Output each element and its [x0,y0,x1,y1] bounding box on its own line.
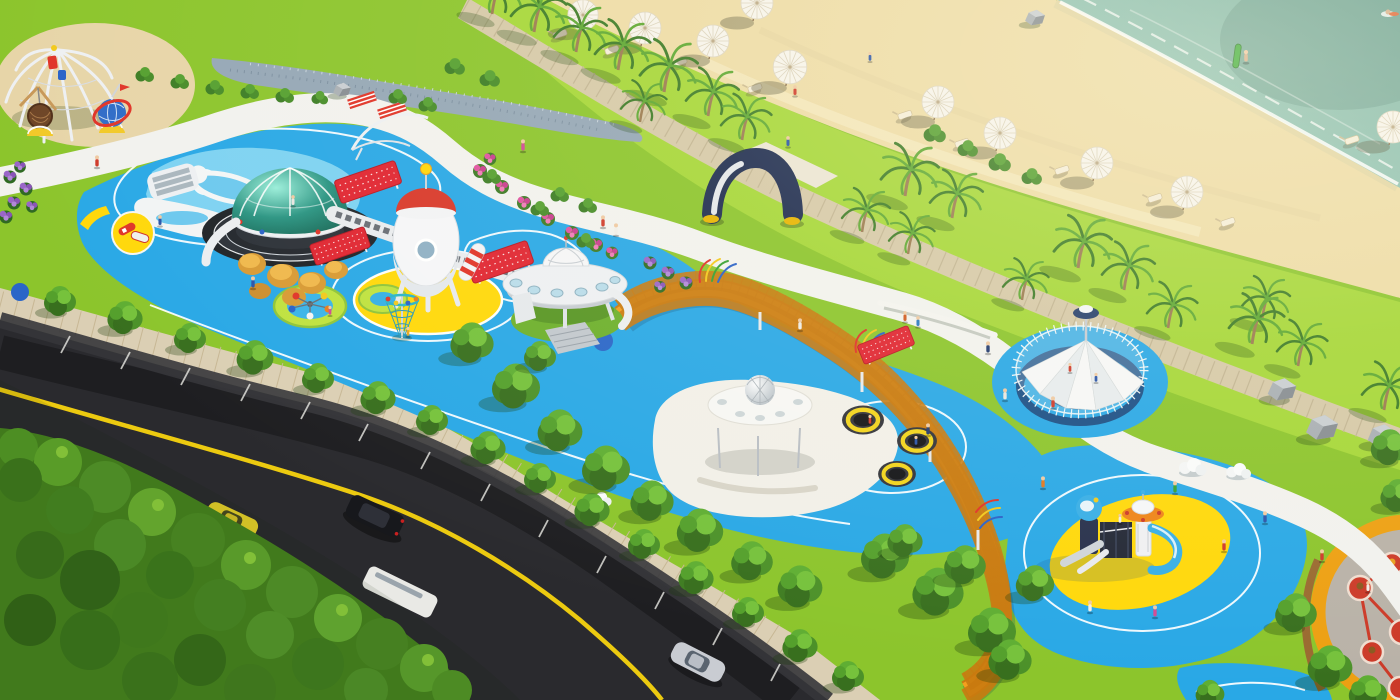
playground-park-rendering [0,0,1400,700]
rendered-scene [0,0,1400,700]
